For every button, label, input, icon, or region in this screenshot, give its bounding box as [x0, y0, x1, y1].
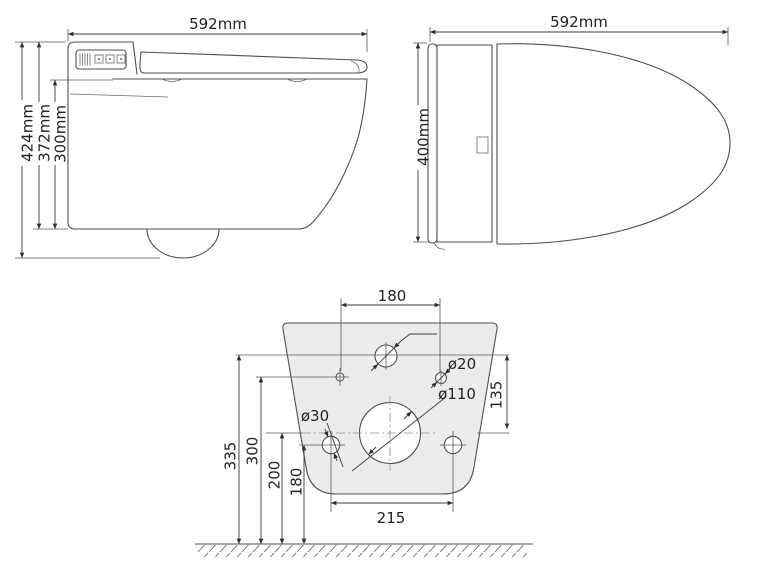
dim-label-215: 215: [377, 509, 406, 527]
dim-label-300: 300: [243, 437, 261, 466]
dim-label-height-424: 424mm: [18, 104, 36, 162]
tank-lid-top: [437, 45, 492, 242]
side-view: 592mm 424mm 372mm 300mm: [15, 15, 367, 258]
drain-outlet-arc: [147, 229, 219, 258]
back-mounting-view: 180 ø20 ø110 ø30 135 335 300 200 180 215: [195, 287, 533, 557]
body-contour-line: [70, 94, 168, 97]
dim-label-d20: ø20: [448, 355, 476, 373]
dim-label-height-300: 300mm: [51, 105, 69, 163]
dim-label-335: 335: [221, 442, 239, 471]
button-glyph: [120, 58, 122, 60]
drawing-svg: 592mm 424mm 372mm 300mm 592mm 400mm: [0, 0, 759, 561]
tank-foot-detail: [434, 242, 445, 249]
dim-label-depth-400: 400mm: [414, 108, 432, 166]
dim-label-side-width: 592mm: [189, 15, 247, 33]
dim-label-180-top: 180: [378, 287, 407, 305]
dim-label-top-width: 592mm: [550, 13, 608, 31]
dim-label-d110: ø110: [438, 385, 476, 403]
seat-lid-top-outline: [497, 44, 730, 244]
control-panel-body: [76, 50, 126, 69]
top-view: 592mm 400mm: [413, 13, 730, 249]
dim-label-d30: ø30: [301, 407, 329, 425]
control-panel: [76, 50, 126, 69]
control-box-front-edge: [133, 42, 137, 74]
button-glyph: [109, 58, 111, 60]
button-glyph: [98, 58, 100, 60]
technical-drawing-canvas: 592mm 424mm 372mm 300mm 592mm 400mm: [0, 0, 759, 561]
dim-label-200: 200: [265, 461, 283, 490]
dim-label-180-left: 180: [287, 468, 305, 497]
dim-label-135: 135: [487, 381, 505, 410]
toilet-lid: [140, 52, 367, 73]
ground-hatch: [197, 545, 527, 557]
